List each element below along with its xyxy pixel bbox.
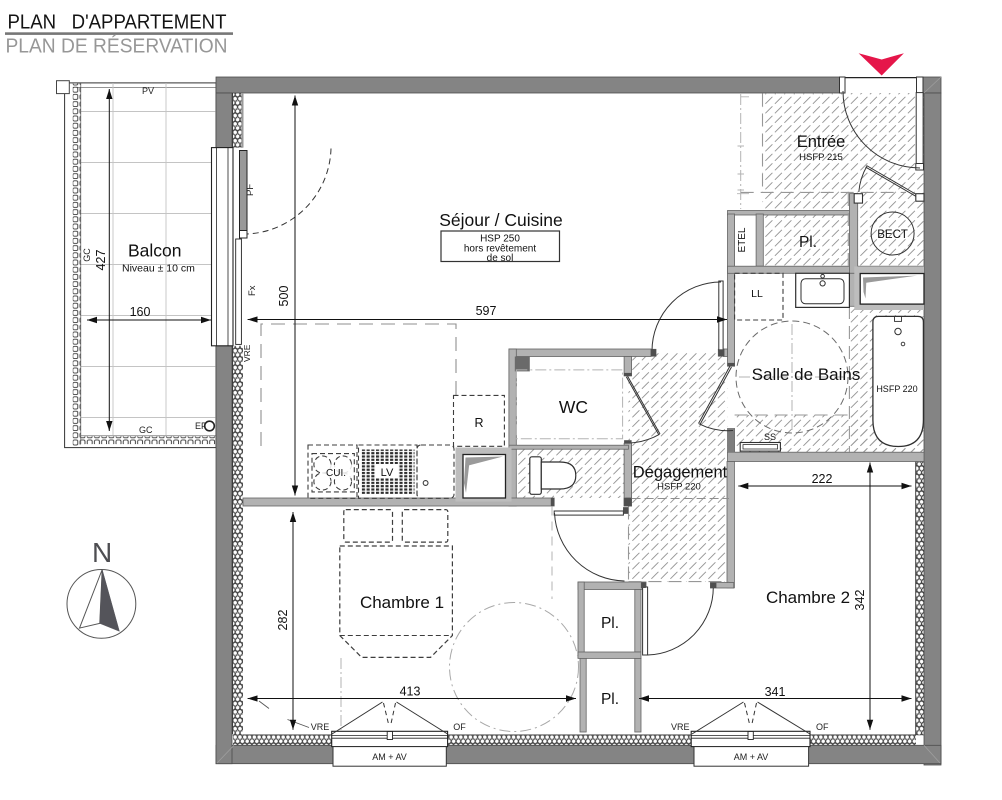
- svg-text:BECT: BECT: [877, 229, 908, 241]
- svg-text:GC: GC: [139, 425, 153, 435]
- svg-text:HSFP 215: HSFP 215: [799, 152, 843, 163]
- svg-text:427: 427: [94, 250, 108, 271]
- svg-text:SS: SS: [764, 432, 776, 442]
- svg-text:Séjour / Cuisine: Séjour / Cuisine: [439, 210, 563, 230]
- svg-text:Chambre 1: Chambre 1: [360, 593, 444, 612]
- svg-text:N: N: [92, 537, 112, 568]
- svg-text:PLAN D'APPARTEMENT: PLAN D'APPARTEMENT: [8, 11, 227, 34]
- svg-text:LV: LV: [381, 467, 394, 479]
- svg-text:Balcon: Balcon: [128, 241, 182, 261]
- svg-text:413: 413: [400, 685, 421, 699]
- svg-text:Niveau ± 10 cm: Niveau ± 10 cm: [122, 263, 195, 275]
- svg-text:PF: PF: [245, 184, 256, 196]
- svg-text:VRE: VRE: [242, 344, 252, 362]
- svg-text:VRE: VRE: [671, 722, 690, 732]
- svg-text:500: 500: [277, 286, 291, 307]
- svg-text:CUI.: CUI.: [326, 468, 346, 479]
- svg-text:Pl.: Pl.: [601, 691, 619, 708]
- svg-text:Pl.: Pl.: [601, 615, 619, 632]
- svg-text:Pl.: Pl.: [799, 234, 817, 251]
- svg-text:LL: LL: [751, 288, 763, 300]
- svg-text:OF: OF: [816, 722, 829, 732]
- svg-text:Salle de Bains: Salle de Bains: [752, 365, 861, 384]
- svg-text:342: 342: [853, 590, 867, 611]
- svg-text:R: R: [474, 416, 483, 430]
- svg-text:PLAN DE RÉSERVATION: PLAN DE RÉSERVATION: [6, 35, 228, 58]
- svg-text:PV: PV: [142, 86, 154, 96]
- svg-text:597: 597: [476, 304, 497, 318]
- svg-text:160: 160: [130, 305, 151, 319]
- svg-text:HSFP 220: HSFP 220: [876, 384, 917, 394]
- svg-text:VRE: VRE: [311, 722, 330, 732]
- svg-text:Dégagement: Dégagement: [633, 464, 728, 482]
- svg-text:ETEL: ETEL: [737, 227, 748, 252]
- svg-text:OF: OF: [453, 722, 466, 732]
- svg-text:341: 341: [765, 685, 786, 699]
- svg-text:Chambre 2: Chambre 2: [766, 588, 850, 607]
- svg-text:Fx: Fx: [247, 285, 258, 296]
- svg-text:HSFP 220: HSFP 220: [657, 482, 701, 493]
- svg-text:282: 282: [276, 610, 290, 631]
- svg-text:AM + AV: AM + AV: [372, 752, 407, 762]
- svg-text:Entrée: Entrée: [797, 133, 846, 151]
- svg-text:GC: GC: [82, 248, 92, 262]
- svg-text:de sol: de sol: [487, 253, 514, 264]
- svg-text:AM + AV: AM + AV: [734, 752, 769, 762]
- svg-text:222: 222: [812, 472, 833, 486]
- svg-text:WC: WC: [559, 397, 588, 417]
